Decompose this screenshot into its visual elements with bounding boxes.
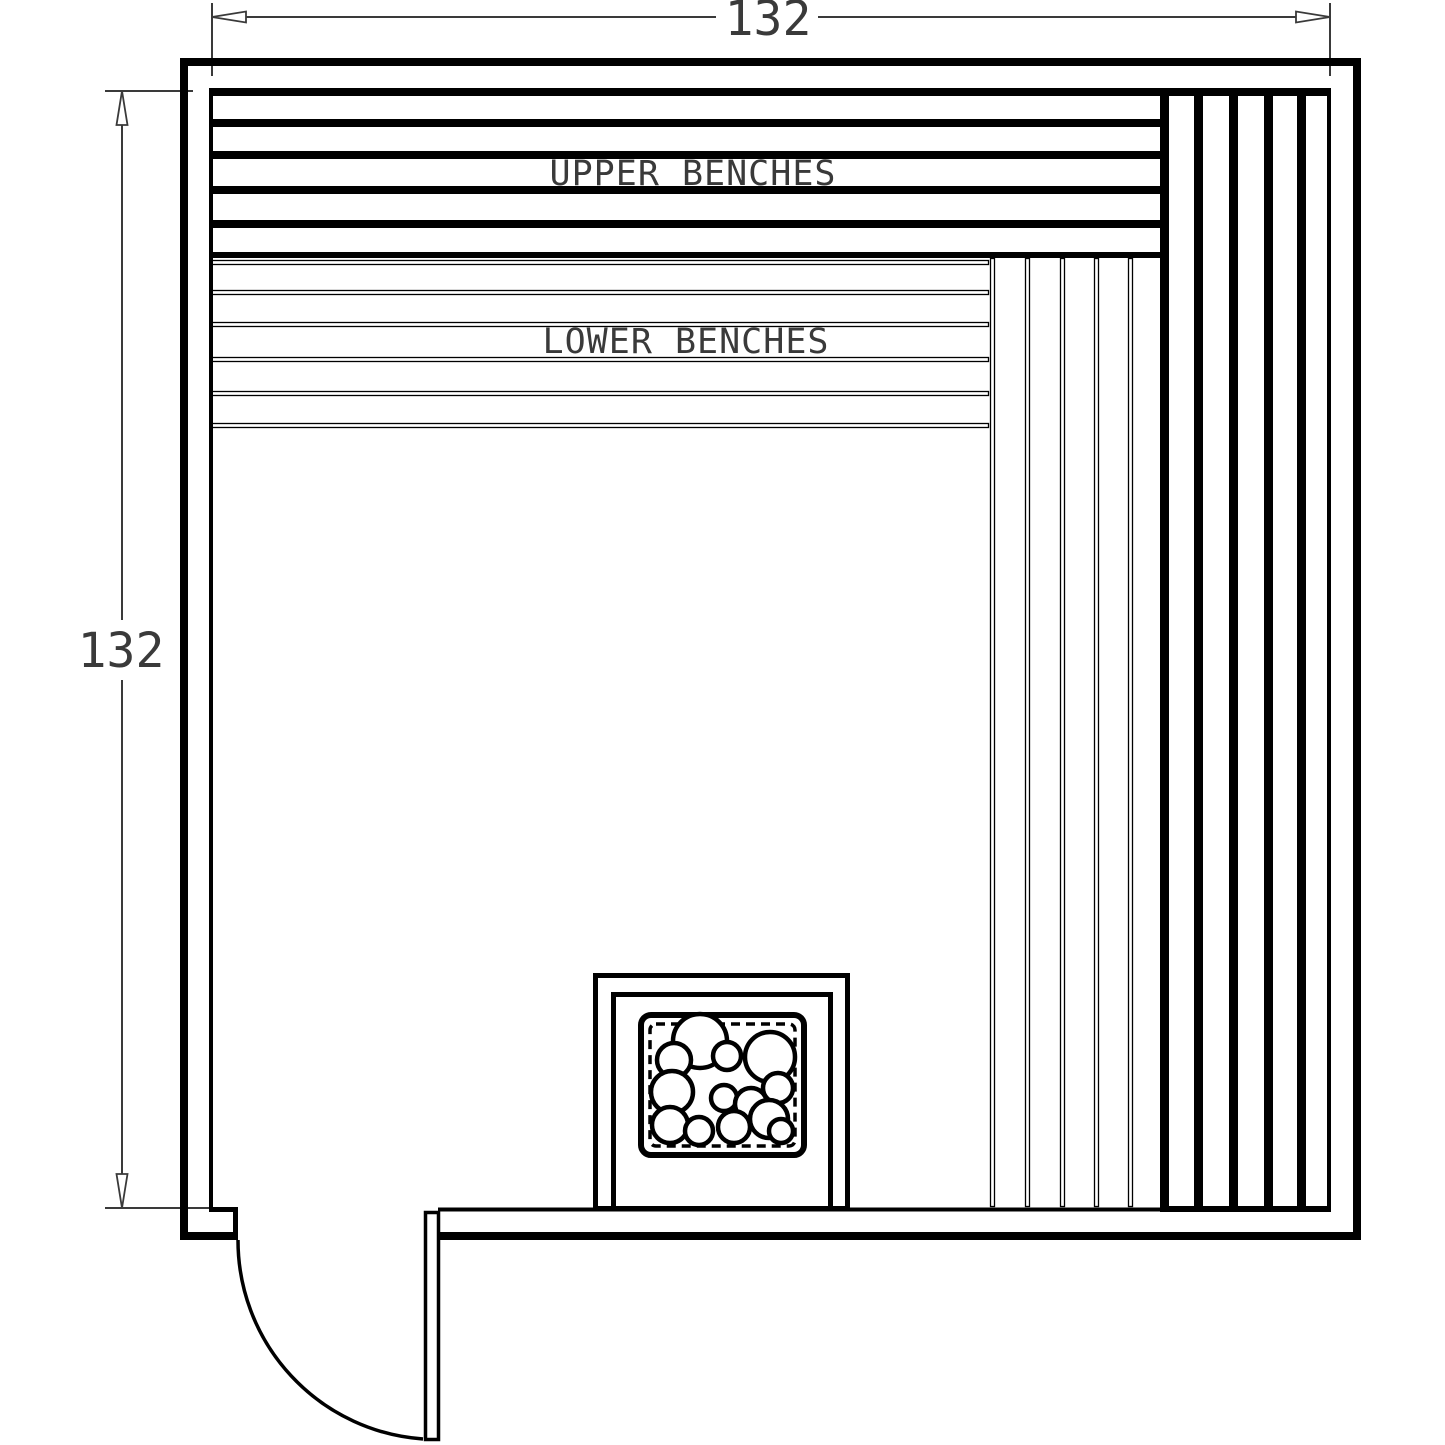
upper-bench-board — [211, 119, 1160, 127]
background — [0, 0, 1445, 1445]
upper-bench-board — [211, 252, 1160, 258]
heater — [596, 976, 848, 1209]
lower-benches-label: LOWER BENCHES — [543, 322, 830, 362]
floor-plan-svg: 132 132 UPPER BENCHES LOWER BENCHES — [0, 0, 1445, 1445]
upper-bench-board — [211, 220, 1160, 228]
heater-rock-icon — [713, 1042, 741, 1070]
wall-plank-divider — [1264, 88, 1273, 1212]
wall-plank-divider — [1297, 88, 1306, 1212]
heater-rock-icon — [718, 1111, 750, 1143]
heater-rock-icon — [652, 1107, 688, 1143]
dim-width-label: 132 — [725, 0, 812, 47]
wall-plank-divider — [1194, 88, 1203, 1212]
dim-height-label: 132 — [78, 623, 165, 679]
heater-rock-icon — [769, 1119, 793, 1143]
upper-benches-label: UPPER BENCHES — [550, 154, 837, 194]
sauna-floor-plan: 132 132 UPPER BENCHES LOWER BENCHES — [0, 0, 1445, 1445]
heater-rock-icon — [685, 1117, 713, 1145]
wall-plank-divider — [1229, 88, 1238, 1212]
upper-bench-board — [211, 88, 1160, 96]
wall-planks-left-border — [1160, 88, 1169, 1212]
wall-planks-right-border — [1327, 88, 1331, 1212]
